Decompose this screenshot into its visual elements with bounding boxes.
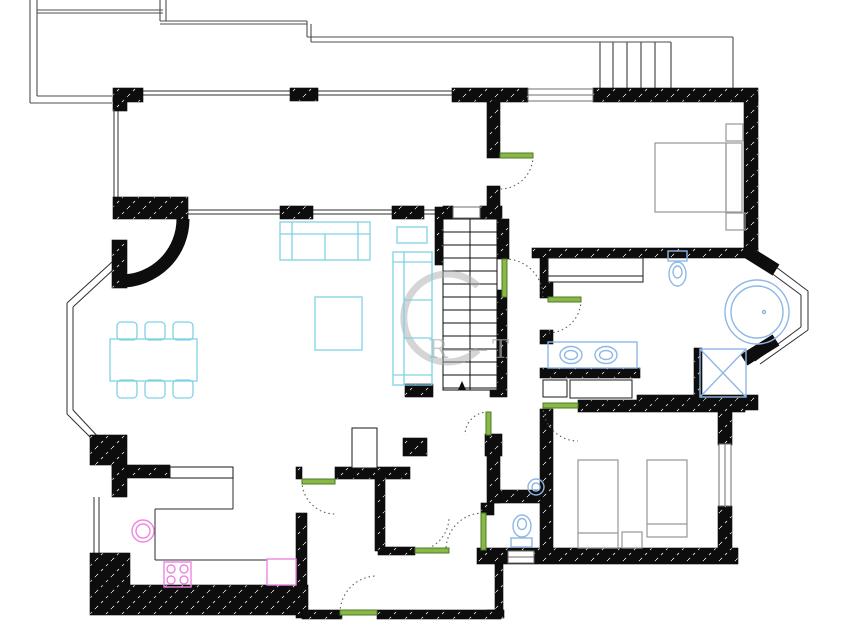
hall-closet: [352, 428, 377, 468]
terrace-corner-w: [113, 97, 127, 111]
door-bathroom-leaf: [548, 297, 581, 302]
door-bedroom1-leaf: [500, 153, 533, 158]
door-kitchen-swing-arc: [302, 481, 335, 514]
corridor-left-wall: [487, 456, 500, 503]
window-glazing: [73, 268, 115, 307]
bedroom2-right-wall-b: [718, 506, 732, 552]
kitchen-inner-wall: [112, 465, 127, 497]
bottom-stub: [495, 564, 503, 614]
kitchen-sink-inner: [136, 524, 150, 538]
hall-wall-upper: [487, 101, 500, 158]
door-bathroom-swing-arc: [548, 300, 581, 333]
fridge: [267, 559, 296, 585]
dining-chair: [173, 380, 193, 398]
bathtub-inner: [731, 286, 783, 338]
kitchen-pass-through: [170, 467, 233, 478]
terrace-pillar-s1: [280, 206, 313, 219]
bed1: [655, 143, 726, 212]
dining-chair: [145, 380, 165, 398]
toilet1-inner: [673, 266, 682, 278]
living-south-pillar: [403, 438, 427, 456]
bed1-nightstand: [726, 124, 743, 141]
bedroom1-right-wall: [744, 95, 758, 255]
bed2a: [578, 460, 618, 548]
door-entry-leaf: [340, 610, 377, 615]
curved-wall: [121, 219, 183, 281]
door-kitchen-leaf: [302, 479, 335, 484]
bed1-nightstand: [726, 213, 745, 230]
bath-wardrobe: [548, 258, 643, 282]
stair-window: [453, 207, 480, 218]
door-bedroom2-leaf: [543, 403, 578, 408]
dining-chair: [145, 322, 165, 340]
entry-wall-right: [377, 610, 501, 619]
bedroom2-north-wall: [578, 400, 745, 412]
laundry-box-a: [543, 380, 567, 397]
kitchen-right-wall: [296, 513, 307, 585]
terrace-pillar-s2: [392, 206, 424, 219]
hallway-vert-wall: [375, 479, 385, 551]
hallway-wall-a: [296, 467, 302, 479]
door-hall-south-leaf: [486, 412, 491, 435]
door-corridor-swing-arc: [415, 517, 449, 551]
toilet2-tank: [511, 538, 532, 547]
bed2b: [647, 460, 687, 537]
door-entry-swing-arc: [340, 576, 377, 613]
bathtub-drain: [763, 311, 766, 314]
stair-bottom-pillar: [405, 384, 433, 397]
vanity-sink-inner: [600, 351, 613, 360]
side-table: [397, 227, 427, 243]
stove-burner: [180, 576, 188, 584]
kitchen-sw-block: [90, 553, 130, 585]
vanity-sink-inner: [565, 351, 578, 360]
floor-plan-canvas: RT: [0, 0, 850, 620]
stove-burner: [167, 576, 175, 584]
shower-wall: [694, 348, 702, 398]
dining-chair: [173, 322, 193, 340]
corridor-pillar: [485, 434, 502, 456]
watermark-letter-t: T: [492, 335, 510, 365]
door-wc-leaf: [481, 513, 486, 550]
kitchen-south-wall: [90, 585, 303, 615]
sofa-side: [393, 252, 432, 385]
vanity-sink: [595, 347, 617, 364]
terrace-pillar-n: [290, 88, 318, 101]
corridor-partition: [378, 547, 415, 555]
door-wc-swing-arc: [446, 513, 483, 550]
door-corridor-leaf: [415, 548, 449, 553]
dining-chair: [117, 380, 137, 398]
terrace-pillar-sw: [113, 197, 188, 219]
door-bedroom1-swing-arc: [500, 156, 533, 189]
vanity-counter: [548, 342, 637, 368]
wall-top-mid: [452, 88, 528, 102]
bedroom2-right-wall-a: [718, 412, 732, 445]
window-glazing: [67, 262, 112, 303]
stair-right-wall-top: [497, 219, 509, 259]
bedroom2-left-wall: [540, 409, 553, 548]
door-stairs-swing-arc: [505, 259, 543, 297]
entry-wall-left: [302, 610, 342, 619]
stove-burner: [180, 565, 188, 573]
watermark-letter-r: R: [428, 335, 449, 365]
wall-top-right: [593, 88, 758, 102]
door-hall-south-swing-arc: [465, 412, 488, 435]
bay2-pillar-top: [744, 250, 776, 270]
hallway-wall-b: [335, 467, 410, 479]
bed2-nightstand: [622, 532, 642, 548]
kitchen-nw-block: [90, 435, 127, 465]
dining-chair: [117, 322, 137, 340]
bedroom1-south-wall: [532, 248, 758, 258]
laundry-box-b: [570, 380, 632, 398]
dining-table: [110, 339, 197, 381]
door-stairs-leaf: [502, 259, 507, 297]
bath-mid-wall: [540, 368, 640, 378]
bed1-head: [726, 143, 742, 212]
toilet2-inner: [518, 519, 527, 530]
hall-wall-lower: [487, 186, 500, 219]
bathtub-outer: [725, 280, 789, 344]
floor-plan-page: RT: [0, 0, 850, 620]
vanity-sink: [560, 347, 582, 364]
coffee-table: [315, 297, 362, 350]
stove-burner: [167, 565, 175, 573]
